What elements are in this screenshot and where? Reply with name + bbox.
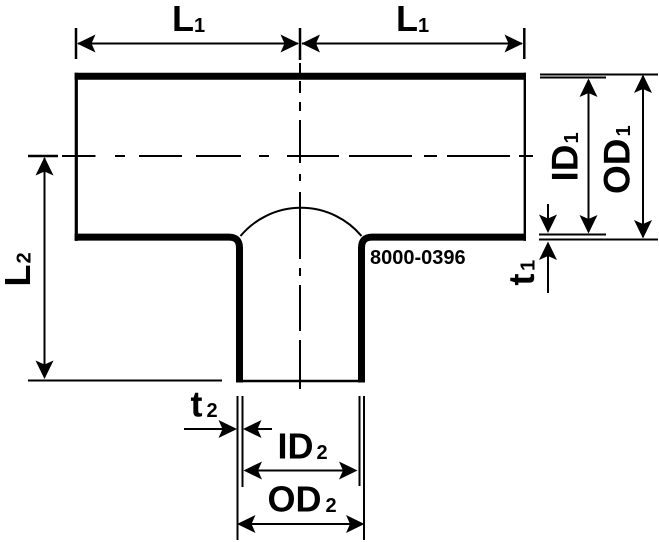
svg-text:L2: L2 bbox=[0, 252, 38, 286]
svg-text:ID1: ID1 bbox=[545, 132, 586, 181]
svg-text:OD2: OD2 bbox=[268, 479, 337, 520]
svg-text:t2: t2 bbox=[191, 384, 218, 425]
svg-text:ID2: ID2 bbox=[278, 426, 328, 467]
svg-text:L1: L1 bbox=[396, 0, 429, 39]
svg-text:t1: t1 bbox=[501, 260, 542, 286]
svg-text:8000-0396: 8000-0396 bbox=[370, 247, 466, 269]
svg-text:OD1: OD1 bbox=[597, 125, 638, 194]
svg-text:L1: L1 bbox=[172, 0, 205, 39]
